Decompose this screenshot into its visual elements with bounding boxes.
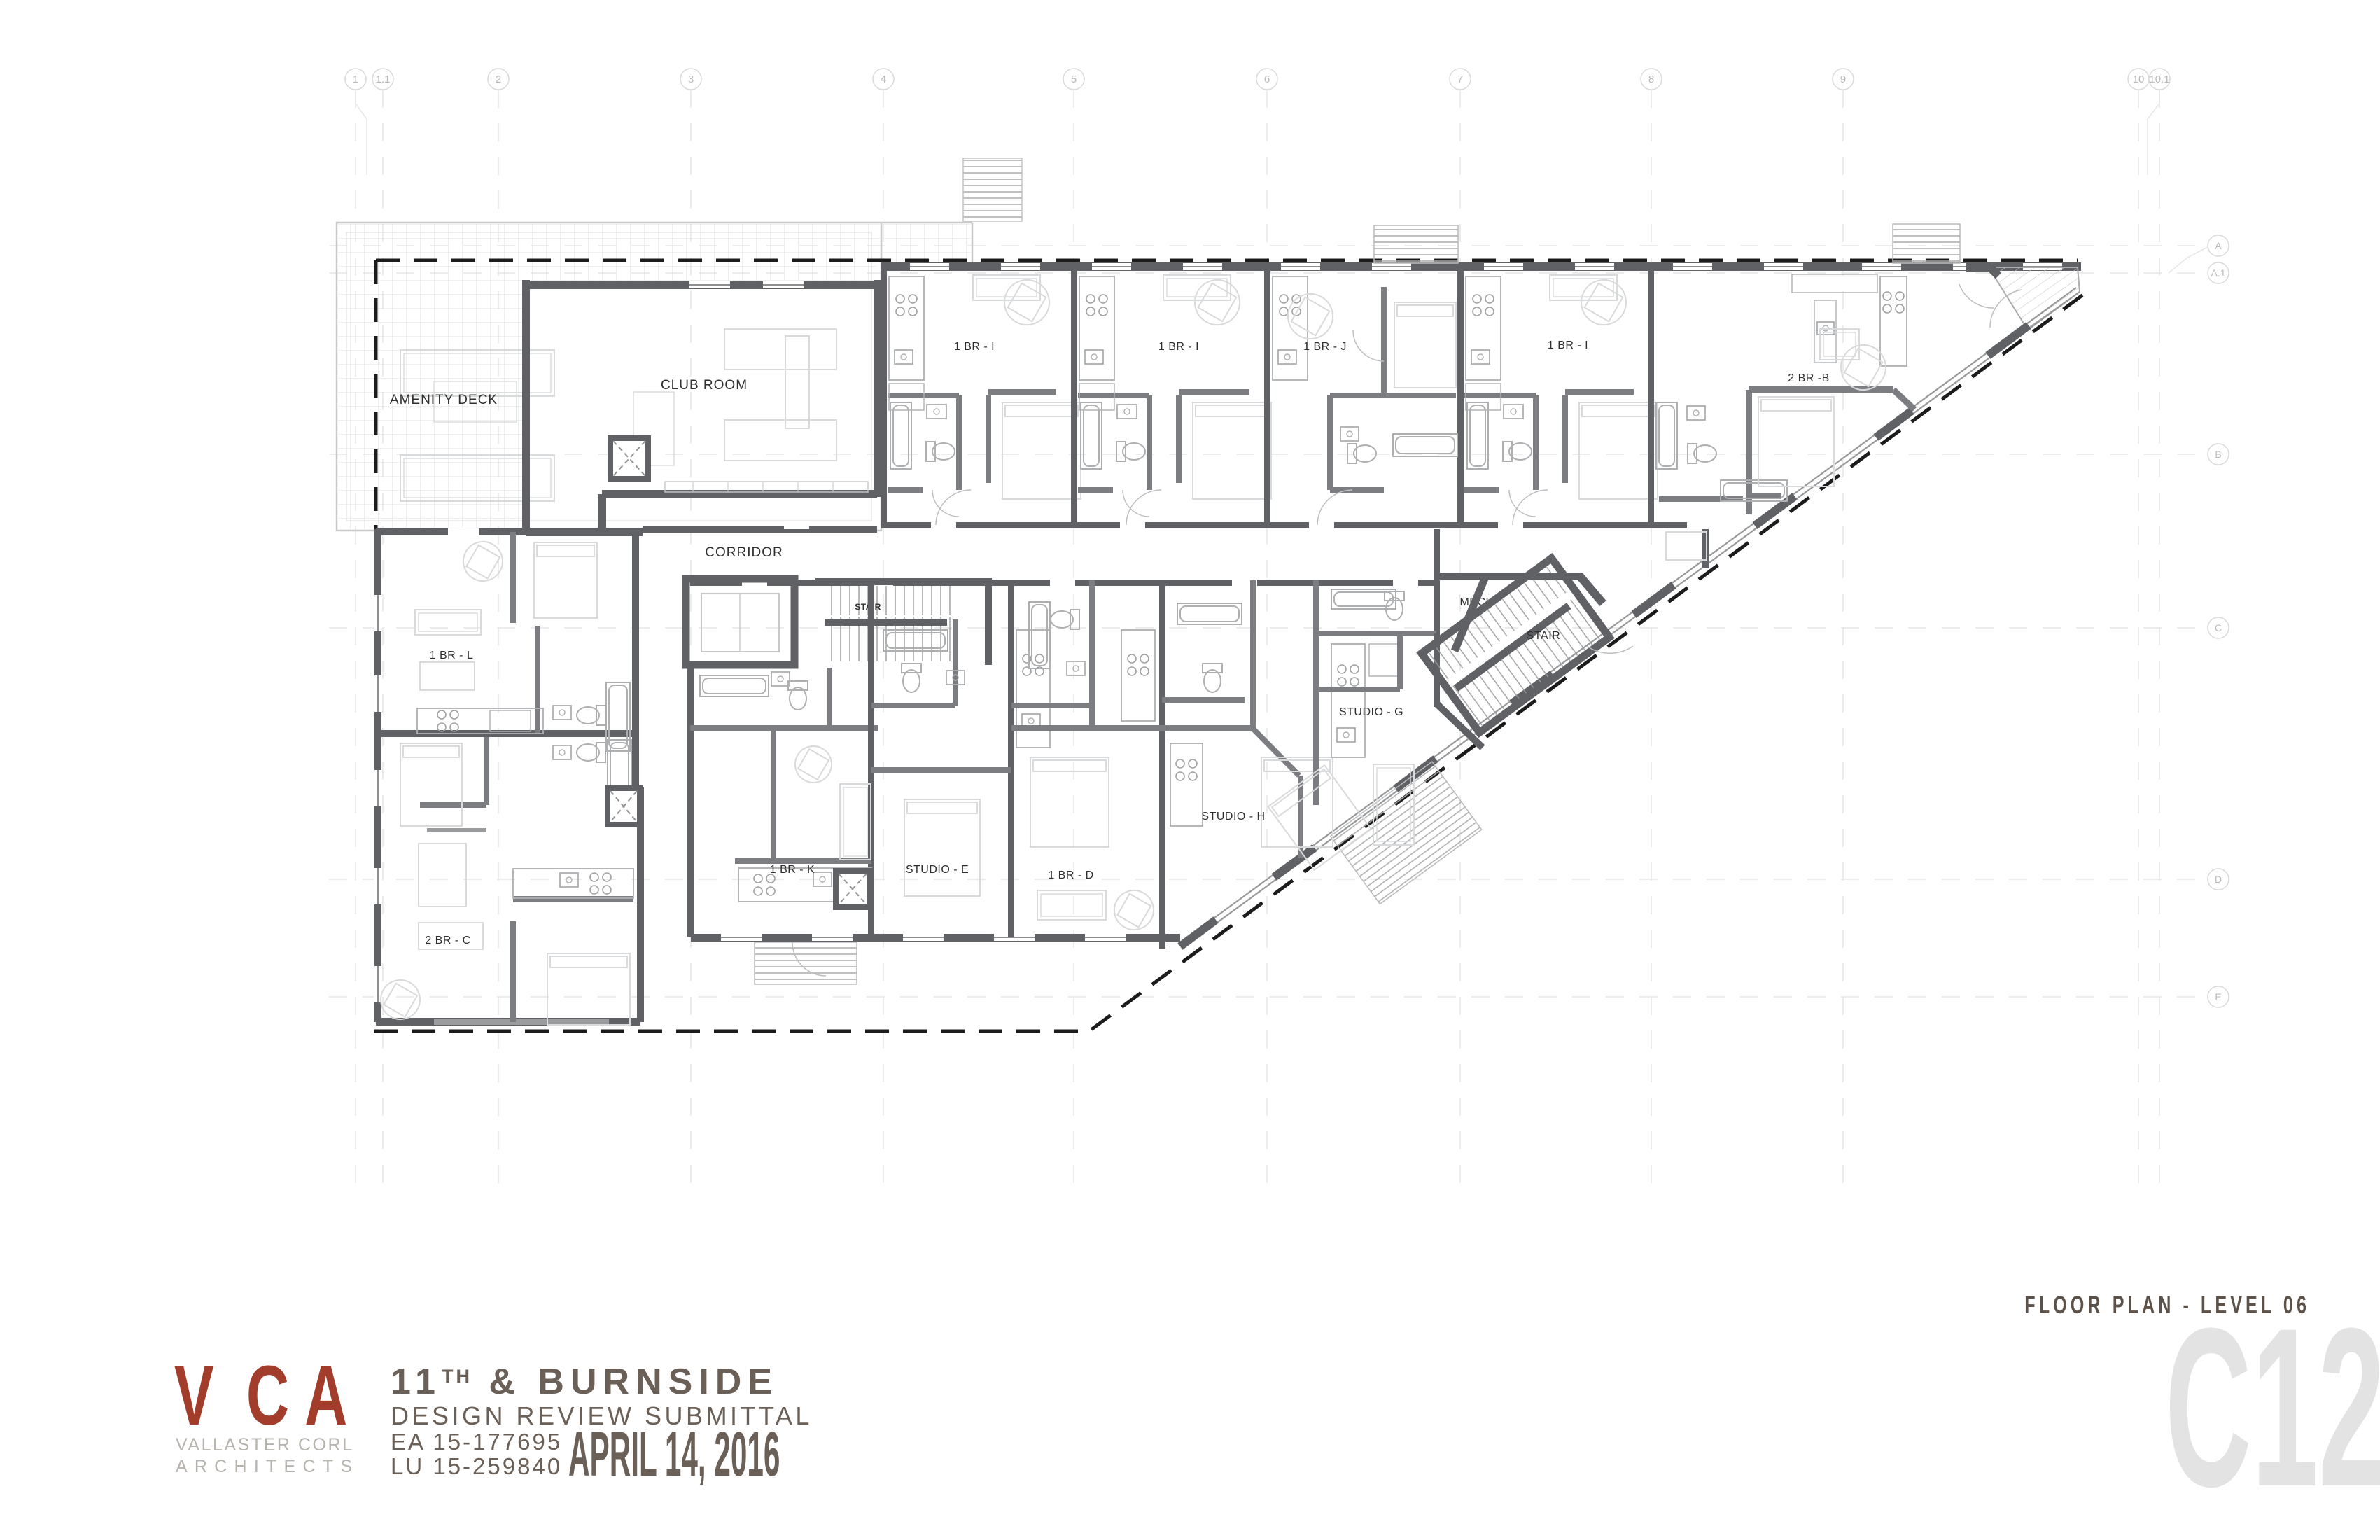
svg-text:E: E	[2215, 991, 2221, 1002]
svg-text:1 BR - J: 1 BR - J	[1303, 341, 1347, 353]
svg-text:1: 1	[353, 73, 358, 85]
svg-text:1 BR - I: 1 BR - I	[1548, 339, 1588, 351]
svg-text:EA 15-177695: EA 15-177695	[391, 1429, 562, 1455]
svg-text:AMENITY DECK: AMENITY DECK	[390, 393, 498, 407]
svg-text:2: 2	[496, 73, 501, 85]
svg-text:2 BR -B: 2 BR -B	[1788, 372, 1830, 384]
svg-text:C: C	[2215, 622, 2222, 633]
svg-text:D: D	[2215, 874, 2222, 885]
svg-text:CORRIDOR: CORRIDOR	[705, 545, 783, 560]
svg-text:APRIL 14, 2016: APRIL 14, 2016	[568, 1418, 780, 1489]
svg-text:10.1: 10.1	[2149, 73, 2169, 85]
svg-text:C12: C12	[2165, 1281, 2380, 1534]
svg-text:1.1: 1.1	[376, 73, 391, 85]
svg-text:6: 6	[1264, 73, 1270, 85]
svg-text:STUDIO - H: STUDIO - H	[1201, 811, 1265, 822]
svg-text:C: C	[246, 1348, 289, 1443]
svg-text:VALLASTER CORL: VALLASTER CORL	[176, 1435, 352, 1455]
svg-text:CLUB ROOM: CLUB ROOM	[661, 378, 748, 393]
svg-text:1 BR - I: 1 BR - I	[954, 341, 995, 353]
svg-text:2 BR - C: 2 BR - C	[425, 934, 470, 946]
svg-text:10: 10	[2133, 73, 2145, 85]
svg-text:V: V	[174, 1348, 213, 1443]
svg-text:8: 8	[1648, 73, 1654, 85]
svg-text:1 BR - I: 1 BR - I	[1158, 341, 1199, 353]
svg-text:1 BR - L: 1 BR - L	[430, 650, 474, 661]
svg-text:LU 15-259840: LU 15-259840	[391, 1453, 562, 1479]
svg-text:STAIR: STAIR	[1527, 630, 1560, 642]
svg-text:A: A	[2215, 240, 2222, 251]
svg-text:STUDIO - E: STUDIO - E	[906, 864, 969, 876]
svg-text:5: 5	[1071, 73, 1077, 85]
svg-text:STUDIO - G: STUDIO - G	[1339, 706, 1403, 718]
svg-text:3: 3	[688, 73, 694, 85]
svg-text:1 BR - D: 1 BR - D	[1048, 869, 1093, 881]
svg-text:1 BR - K: 1 BR - K	[770, 864, 815, 876]
svg-text:7: 7	[1457, 73, 1463, 85]
svg-text:9: 9	[1840, 73, 1846, 85]
svg-text:A: A	[304, 1348, 347, 1443]
svg-text:4: 4	[881, 73, 886, 85]
svg-text:B: B	[2215, 449, 2221, 460]
svg-text:A.1: A.1	[2211, 267, 2225, 279]
